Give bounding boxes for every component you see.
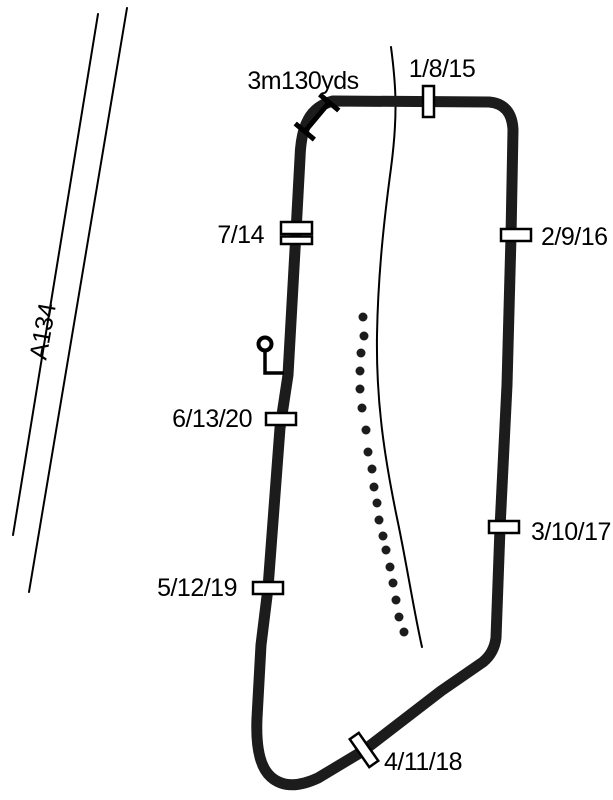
checkpoint-3: 3/10/17 bbox=[489, 518, 611, 546]
path-dot bbox=[358, 404, 367, 413]
checkpoint-label-1: 1/8/15 bbox=[409, 55, 476, 83]
path-dot bbox=[389, 579, 398, 588]
checkpoint-label-5: 5/12/19 bbox=[157, 574, 237, 602]
checkpoint-label-3: 3/10/17 bbox=[531, 518, 611, 546]
checkpoint-label-4: 4/11/18 bbox=[384, 748, 462, 776]
checkpoint-marker-7a bbox=[281, 222, 312, 234]
dotted-path bbox=[356, 313, 409, 637]
checkpoint-marker-1 bbox=[423, 86, 434, 117]
checkpoint-1: 1/8/15 bbox=[409, 55, 476, 117]
path-dot bbox=[382, 546, 391, 555]
checkpoint-marker-7b bbox=[281, 237, 312, 245]
path-dot bbox=[360, 332, 369, 341]
path-dot bbox=[362, 426, 371, 435]
path-dot bbox=[357, 349, 366, 358]
checkpoint-4: 4/11/18 bbox=[350, 733, 462, 776]
circuit-track bbox=[257, 101, 513, 785]
checkpoint-marker-3 bbox=[489, 521, 519, 533]
path-dot bbox=[392, 596, 401, 605]
course-map: A134 3m130yds 1/8/15 2/9/16 bbox=[0, 0, 613, 800]
road-label: A134 bbox=[24, 301, 61, 362]
inner-road-line bbox=[377, 47, 422, 647]
checkpoint-label-6: 6/13/20 bbox=[172, 405, 252, 433]
path-dot bbox=[370, 483, 379, 492]
checkpoint-2: 2/9/16 bbox=[501, 223, 608, 251]
path-dot bbox=[379, 532, 388, 541]
checkpoint-7: 7/14 bbox=[217, 221, 312, 249]
checkpoint-marker-6 bbox=[266, 413, 296, 425]
path-dot bbox=[373, 499, 382, 508]
path-dot bbox=[359, 313, 368, 322]
signpost-post bbox=[265, 351, 284, 373]
path-dot bbox=[400, 628, 409, 637]
road-a134: A134 bbox=[13, 8, 127, 592]
course-map-page: A134 3m130yds 1/8/15 2/9/16 bbox=[0, 0, 613, 800]
path-dot bbox=[356, 367, 365, 376]
path-dot bbox=[364, 448, 373, 457]
path-dot bbox=[375, 516, 384, 525]
distance-label: 3m130yds bbox=[247, 67, 358, 95]
path-dot bbox=[395, 613, 404, 622]
path-dot bbox=[368, 465, 377, 474]
path-dot bbox=[356, 385, 365, 394]
signpost-ring bbox=[259, 338, 272, 351]
checkpoint-marker-5 bbox=[253, 582, 283, 594]
path-dot bbox=[386, 563, 395, 572]
road-line-right bbox=[29, 8, 127, 592]
checkpoint-label-7: 7/14 bbox=[217, 221, 264, 249]
checkpoint-marker-2 bbox=[501, 229, 531, 241]
road-line-left bbox=[13, 14, 98, 535]
checkpoint-label-2: 2/9/16 bbox=[541, 223, 608, 251]
signpost-icon bbox=[259, 338, 285, 374]
